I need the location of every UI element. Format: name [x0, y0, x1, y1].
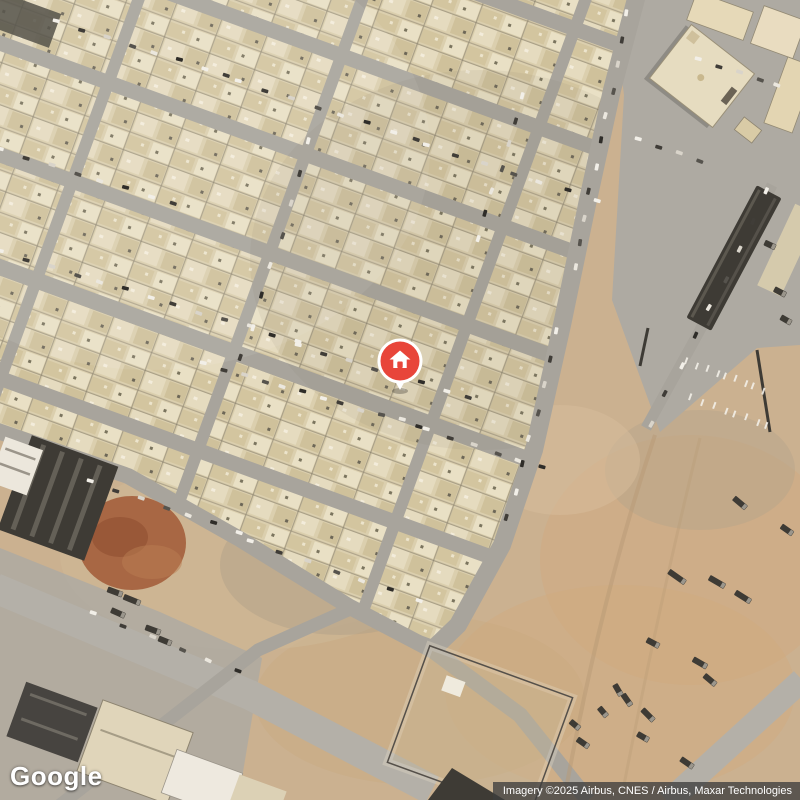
- attribution-bar: Imagery ©2025 Airbus, CNES / Airbus, Max…: [493, 782, 800, 800]
- google-logo[interactable]: Google: [10, 761, 103, 792]
- attribution-text: Imagery ©2025 Airbus, CNES / Airbus, Max…: [503, 785, 792, 797]
- satellite-canvas: [0, 0, 800, 800]
- map-viewport[interactable]: Google Imagery ©2025 Airbus, CNES / Airb…: [0, 0, 800, 800]
